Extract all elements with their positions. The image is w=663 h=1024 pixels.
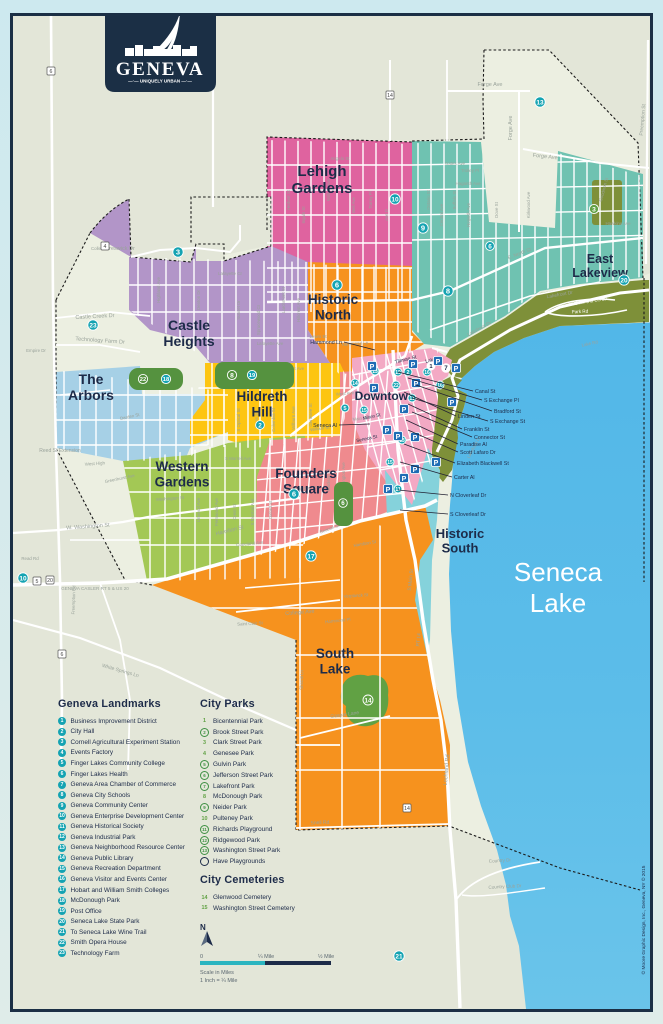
svg-text:Canal St: Canal St: [475, 389, 496, 395]
svg-text:P: P: [402, 407, 407, 414]
svg-text:S Morrell Ave: S Morrell Ave: [225, 456, 252, 461]
svg-text:South: South: [316, 646, 354, 661]
svg-text:South: South: [442, 541, 479, 556]
svg-text:Arbors: Arbors: [68, 387, 114, 403]
svg-text:Hammond Ln: Hammond Ln: [310, 340, 342, 346]
svg-text:6: 6: [292, 490, 296, 499]
svg-text:Hildreth: Hildreth: [236, 389, 287, 404]
svg-text:23: 23: [89, 322, 97, 329]
svg-text:Kirkwood Ave: Kirkwood Ave: [526, 191, 531, 218]
svg-text:Hillcrest Ave: Hillcrest Ave: [296, 297, 301, 322]
svg-text:Forge Ave: Forge Ave: [478, 82, 503, 88]
svg-text:P: P: [411, 362, 416, 369]
svg-text:Sunset Dr: Sunset Dr: [236, 300, 241, 320]
svg-text:Gardens: Gardens: [292, 180, 353, 197]
svg-text:6: 6: [50, 69, 53, 75]
svg-text:18: 18: [163, 377, 170, 383]
svg-text:Sherrill Ln: Sherrill Ln: [299, 669, 305, 689]
svg-text:Historic: Historic: [308, 292, 359, 307]
svg-text:3: 3: [592, 206, 596, 213]
svg-text:20: 20: [620, 277, 628, 284]
svg-text:P: P: [454, 366, 459, 373]
svg-text:Central Ave: Central Ave: [439, 203, 444, 226]
svg-text:Trolley Pl: Trolley Pl: [461, 168, 479, 173]
svg-text:P: P: [413, 435, 418, 442]
svg-text:S Exchange Pl: S Exchange Pl: [484, 398, 519, 404]
svg-text:Heights: Heights: [163, 333, 215, 349]
svg-text:21: 21: [395, 953, 403, 960]
svg-text:Castle: Castle: [168, 317, 210, 333]
svg-text:4: 4: [104, 244, 107, 250]
svg-text:Freemption Rd: Freemption Rd: [70, 585, 76, 615]
svg-text:Gardens: Gardens: [155, 474, 210, 489]
svg-text:Founders: Founders: [275, 466, 337, 481]
svg-text:14: 14: [365, 697, 372, 704]
svg-text:Lehigh: Lehigh: [297, 163, 346, 180]
svg-text:10: 10: [391, 196, 399, 203]
svg-text:S Cloverleaf Dr: S Cloverleaf Dr: [450, 512, 486, 518]
svg-text:S Exchange St: S Exchange St: [490, 419, 526, 425]
svg-text:Torrey Pl: Torrey Pl: [368, 191, 373, 208]
svg-text:15: 15: [361, 408, 367, 414]
svg-text:Gates Ave: Gates Ave: [445, 161, 466, 166]
svg-text:© Moore Graphic Design, Inc.,: © Moore Graphic Design, Inc., Geneva, NY…: [640, 865, 647, 974]
svg-text:Lake: Lake: [320, 661, 351, 676]
svg-text:5: 5: [36, 579, 39, 585]
svg-text:9: 9: [421, 224, 425, 233]
svg-text:Lake: Lake: [530, 588, 586, 618]
svg-text:Hill: Hill: [251, 404, 272, 419]
svg-text:P: P: [436, 359, 441, 366]
svg-text:—·— UNIQUELY URBAN —·—: —·— UNIQUELY URBAN —·—: [128, 79, 192, 84]
svg-text:7: 7: [444, 365, 448, 372]
svg-text:S Normal Ave: S Normal Ave: [250, 498, 255, 525]
svg-text:Reed St Extension: Reed St Extension: [39, 448, 81, 454]
svg-text:GENEVA: GENEVA: [116, 59, 204, 80]
svg-text:16: 16: [424, 370, 430, 376]
svg-text:Dove St: Dove St: [494, 201, 499, 217]
svg-text:P: P: [386, 487, 391, 494]
svg-text:Park Rd: Park Rd: [571, 309, 588, 315]
svg-text:14: 14: [387, 93, 393, 99]
svg-text:Empire Dr: Empire Dr: [26, 348, 46, 353]
svg-text:Western: Western: [155, 459, 208, 474]
svg-text:13: 13: [536, 99, 544, 106]
svg-text:Lafayette Cr: Lafayette Cr: [218, 271, 242, 276]
svg-text:6: 6: [61, 652, 64, 658]
svg-text:Ingals St: Ingals St: [301, 206, 306, 224]
svg-text:Hogarth Ave: Hogarth Ave: [466, 202, 471, 227]
svg-text:15: 15: [387, 460, 393, 466]
svg-text:Larchmont St: Larchmont St: [281, 286, 286, 313]
svg-text:S Optical St: S Optical St: [236, 408, 241, 432]
svg-text:22: 22: [140, 377, 146, 383]
svg-text:Unwood Ave: Unwood Ave: [196, 497, 201, 522]
svg-text:Fernwood Ave: Fernwood Ave: [214, 497, 219, 526]
svg-text:Downtown: Downtown: [355, 389, 416, 403]
svg-text:8: 8: [446, 287, 450, 296]
svg-text:Highland Ave: Highland Ave: [156, 277, 161, 303]
svg-text:6: 6: [488, 243, 492, 250]
svg-text:Read Rd: Read Rd: [21, 556, 39, 561]
svg-text:P: P: [385, 428, 390, 435]
svg-text:P: P: [402, 476, 407, 483]
svg-text:North: North: [315, 307, 351, 322]
svg-text:Carter Al: Carter Al: [454, 475, 475, 481]
svg-text:8: 8: [230, 372, 234, 379]
svg-text:10: 10: [19, 575, 27, 582]
svg-text:22: 22: [393, 383, 399, 389]
svg-text:P: P: [396, 434, 401, 441]
svg-text:Bradford St: Bradford St: [494, 409, 521, 415]
svg-text:P: P: [434, 460, 439, 467]
svg-text:17: 17: [307, 553, 315, 560]
svg-text:Historic: Historic: [436, 526, 484, 541]
svg-text:Linden St: Linden St: [458, 414, 481, 420]
svg-text:14: 14: [404, 806, 410, 812]
svg-text:P: P: [372, 386, 377, 393]
svg-text:P: P: [413, 467, 418, 474]
svg-text:Scott Lafaro Dr: Scott Lafaro Dr: [460, 450, 496, 456]
svg-text:Forge Ave: Forge Ave: [508, 116, 514, 141]
svg-text:14: 14: [352, 381, 358, 387]
svg-text:Seneca Al: Seneca Al: [313, 423, 337, 429]
svg-text:P: P: [450, 400, 455, 407]
svg-text:Paradise Al: Paradise Al: [460, 442, 487, 448]
svg-text:Buffalo St: Buffalo St: [452, 190, 457, 210]
svg-text:Oxford St: Oxford St: [268, 500, 273, 519]
svg-text:Hawkins Ave: Hawkins Ave: [605, 221, 631, 226]
svg-text:P: P: [414, 381, 419, 388]
svg-text:3: 3: [176, 248, 180, 257]
svg-text:6: 6: [341, 500, 345, 507]
svg-text:2: 2: [406, 370, 409, 376]
svg-text:Crest St: Crest St: [232, 503, 237, 520]
svg-text:19: 19: [249, 373, 255, 379]
svg-text:The: The: [79, 371, 104, 387]
svg-text:Lewrs St: Lewrs St: [309, 334, 327, 339]
svg-text:N Cloverleaf Dr: N Cloverleaf Dr: [450, 493, 486, 499]
svg-text:East: East: [587, 252, 614, 266]
svg-text:Lafayette Ave: Lafayette Ave: [257, 341, 284, 346]
svg-text:Wilburn Ave: Wilburn Ave: [291, 406, 296, 430]
svg-text:Herbert St: Herbert St: [286, 189, 291, 210]
svg-text:P: P: [370, 364, 375, 371]
svg-text:Elizabeth Blackwell St: Elizabeth Blackwell St: [457, 461, 509, 467]
svg-text:6: 6: [335, 281, 339, 290]
svg-text:Bell Ave: Bell Ave: [351, 197, 356, 213]
svg-text:Creswick Dr: Creswick Dr: [105, 246, 135, 252]
svg-text:Franklin St: Franklin St: [464, 427, 490, 433]
svg-text:Connector St: Connector St: [474, 435, 505, 441]
svg-text:2: 2: [258, 422, 262, 429]
svg-text:Ontario St: Ontario St: [426, 189, 431, 210]
svg-text:20: 20: [47, 578, 53, 584]
svg-text:Denton Dr: Denton Dr: [196, 289, 201, 310]
svg-text:Angelo St: Angelo St: [330, 156, 350, 161]
svg-text:Seneca: Seneca: [514, 557, 603, 587]
svg-text:Sprucewood Cr: Sprucewood Cr: [256, 304, 261, 335]
svg-text:Ave D: Ave D: [384, 209, 389, 221]
svg-text:Haganth Ave: Haganth Ave: [455, 181, 481, 186]
